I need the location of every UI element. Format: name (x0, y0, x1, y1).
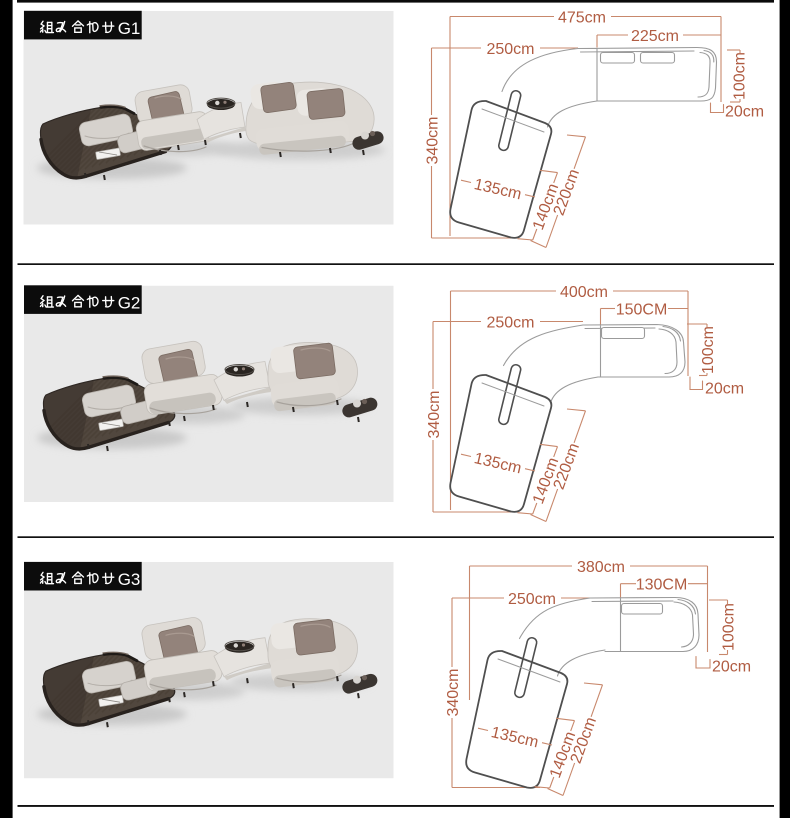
svg-text:G1: G1 (118, 19, 141, 38)
svg-text:20cm: 20cm (705, 380, 744, 397)
svg-text:100cm: 100cm (700, 326, 717, 374)
svg-text:150CM: 150CM (616, 301, 668, 318)
svg-text:250cm: 250cm (508, 591, 556, 608)
svg-text:340cm: 340cm (426, 390, 443, 438)
svg-text:20cm: 20cm (725, 103, 764, 120)
svg-text:G2: G2 (118, 294, 141, 313)
svg-text:250cm: 250cm (486, 314, 534, 331)
svg-text:340cm: 340cm (445, 668, 462, 716)
svg-text:20cm: 20cm (712, 658, 751, 675)
svg-text:130CM: 130CM (636, 576, 688, 593)
svg-text:340cm: 340cm (424, 116, 441, 164)
svg-text:250cm: 250cm (486, 41, 534, 58)
svg-text:475cm: 475cm (558, 9, 606, 26)
svg-text:400cm: 400cm (560, 284, 608, 301)
svg-text:100cm: 100cm (720, 603, 737, 651)
svg-text:380cm: 380cm (577, 559, 625, 576)
svg-text:100cm: 100cm (731, 52, 748, 100)
svg-text:225cm: 225cm (631, 28, 679, 45)
svg-text:G3: G3 (118, 570, 141, 589)
